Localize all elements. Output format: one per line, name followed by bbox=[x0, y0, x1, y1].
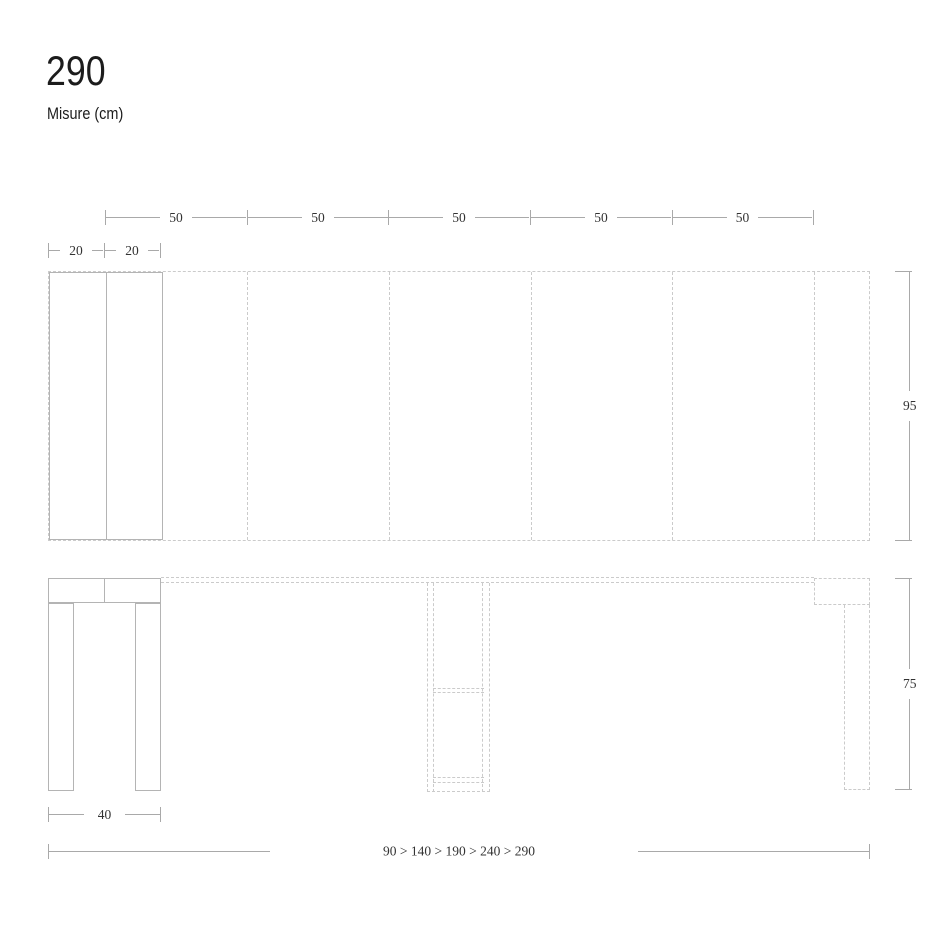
dim-value: 50 bbox=[311, 211, 325, 225]
dim-line bbox=[148, 250, 159, 251]
dim-segment-20: 20 bbox=[49, 243, 103, 258]
trestle-crossbar bbox=[433, 777, 484, 783]
depth-dimension: 95 bbox=[895, 271, 912, 541]
page-subtitle: Misure (cm) bbox=[47, 104, 123, 124]
closed-console-top bbox=[49, 272, 163, 540]
front-right-leg bbox=[135, 603, 161, 791]
console-top-band bbox=[48, 578, 161, 603]
top-view-outline bbox=[48, 271, 870, 541]
dim-segment-50: 50 bbox=[106, 210, 246, 225]
dim-value: 20 bbox=[125, 244, 139, 258]
dim-segment-40: 40 bbox=[49, 807, 160, 822]
dim-segment-95: 95 bbox=[903, 271, 917, 541]
top-width-dimension-row: 50 50 50 50 50 bbox=[105, 210, 814, 225]
dim-segment-50: 50 bbox=[389, 210, 529, 225]
trestle-crossbar bbox=[433, 688, 484, 693]
page-title: 290 bbox=[46, 50, 106, 92]
center-support-dashed bbox=[427, 583, 490, 792]
dim-line bbox=[105, 250, 116, 251]
dim-value: 50 bbox=[736, 211, 750, 225]
dim-line bbox=[475, 217, 529, 218]
dim-line bbox=[92, 250, 103, 251]
dim-value: 20 bbox=[69, 244, 83, 258]
dim-line bbox=[638, 851, 870, 852]
dim-segment-50: 50 bbox=[531, 210, 671, 225]
technical-drawing-canvas: 290 Misure (cm) 50 50 50 50 50 20 bbox=[0, 0, 950, 950]
base-width-dimension-row: 40 bbox=[48, 807, 161, 822]
extension-divider-dashed bbox=[531, 272, 532, 540]
dim-line bbox=[106, 217, 160, 218]
dim-line bbox=[334, 217, 388, 218]
dim-line bbox=[909, 421, 910, 541]
dim-line bbox=[673, 217, 727, 218]
dim-tick bbox=[813, 210, 814, 225]
front-left-leg bbox=[48, 603, 74, 791]
console-band-divider bbox=[104, 579, 105, 602]
dim-line bbox=[758, 217, 812, 218]
dim-value: 50 bbox=[452, 211, 466, 225]
dim-segment-75: 75 bbox=[903, 578, 917, 790]
extension-divider-dashed bbox=[672, 272, 673, 540]
dim-line bbox=[125, 814, 160, 815]
extension-divider-dashed bbox=[814, 272, 815, 540]
dim-line bbox=[909, 699, 910, 790]
extension-sequence-value: 90 > 140 > 190 > 240 > 290 bbox=[379, 844, 539, 858]
closed-top-dimension-row: 20 20 bbox=[48, 243, 161, 258]
console-top-divider bbox=[106, 273, 107, 539]
dim-line bbox=[48, 851, 270, 852]
dim-line bbox=[389, 217, 443, 218]
dim-line bbox=[192, 217, 246, 218]
extension-divider-dashed bbox=[247, 272, 248, 540]
dim-line bbox=[617, 217, 671, 218]
end-top-band-dashed bbox=[814, 578, 870, 605]
dim-line bbox=[49, 250, 60, 251]
dim-value: 95 bbox=[903, 399, 917, 413]
dim-tick bbox=[160, 807, 161, 822]
dim-segment-50: 50 bbox=[248, 210, 388, 225]
end-leg-dashed bbox=[844, 605, 870, 790]
dim-value: 50 bbox=[169, 211, 183, 225]
extension-widths-dimension: 90 > 140 > 190 > 240 > 290 bbox=[48, 843, 870, 859]
height-dimension: 75 bbox=[895, 578, 912, 790]
extension-divider-dashed bbox=[389, 272, 390, 540]
dim-line bbox=[248, 217, 302, 218]
dim-value: 40 bbox=[98, 808, 112, 822]
dim-line bbox=[909, 271, 910, 391]
dim-line bbox=[49, 814, 84, 815]
dim-tick bbox=[160, 243, 161, 258]
dim-segment-20: 20 bbox=[105, 243, 159, 258]
dim-line bbox=[909, 578, 910, 669]
dim-line bbox=[531, 217, 585, 218]
dim-segment-50: 50 bbox=[673, 210, 812, 225]
dim-value: 50 bbox=[594, 211, 608, 225]
dim-value: 75 bbox=[903, 677, 917, 691]
